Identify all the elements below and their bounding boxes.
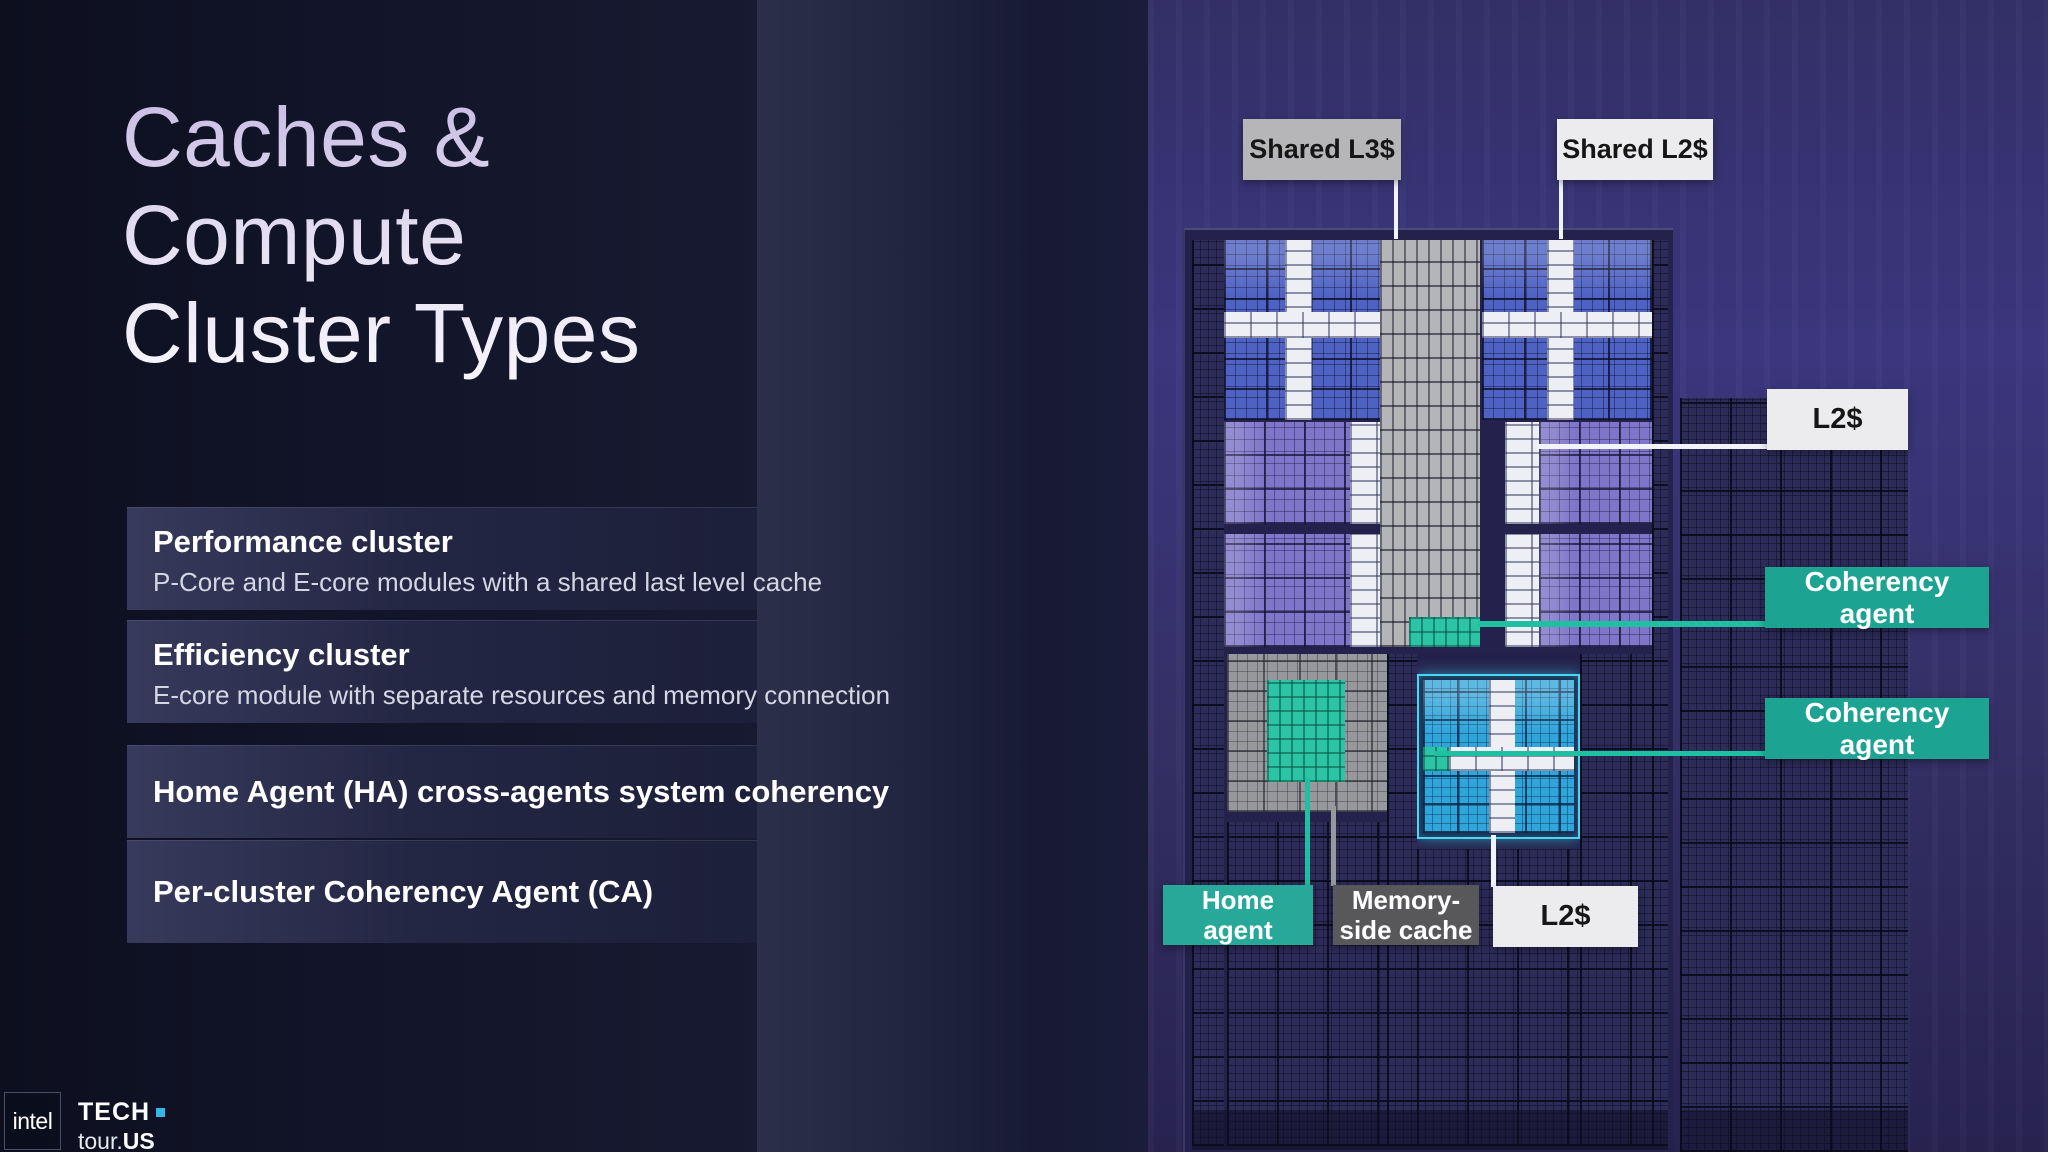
- connector-coherency-agent-1: [1478, 621, 1766, 627]
- connector-l2-top: [1538, 444, 1768, 449]
- die-bottom-seam: [1192, 1110, 1668, 1150]
- intel-logo: intel: [4, 1092, 61, 1150]
- label-l2-top: L2$: [1767, 389, 1908, 450]
- die-pcore-row2-left: [1224, 534, 1350, 647]
- tech-text: TECH: [78, 1098, 150, 1127]
- title-line-1: Caches &: [122, 88, 762, 186]
- die-efficiency-cluster-module: [1417, 674, 1580, 839]
- die-l2-bank-row2-left: [1350, 534, 1380, 647]
- die-fabric-left-column: [1192, 240, 1224, 1146]
- label-shared-l3: Shared L3$: [1243, 119, 1401, 180]
- tech-tour-line2: tour.US: [78, 1128, 165, 1152]
- die-l2-bank-row2-right: [1505, 534, 1539, 647]
- label-text-line2: side cache: [1340, 915, 1473, 945]
- connector-l2-bottom: [1491, 835, 1496, 887]
- label-text-line2: agent: [1203, 915, 1272, 945]
- die-coherency-agent-block-top: [1409, 617, 1480, 647]
- connector-coherency-agent-2: [1434, 751, 1766, 756]
- tech-tour-logo: TECH tour.US: [78, 1098, 165, 1152]
- die-uncore-block-right: [1680, 398, 1908, 1152]
- label-l2-bottom: L2$: [1493, 886, 1638, 947]
- connector-home-agent: [1305, 778, 1310, 886]
- label-text: Coherency agent: [1765, 697, 1989, 761]
- tour-text: tour.: [78, 1128, 123, 1152]
- die-l2-strip-horizontal-left: [1224, 312, 1392, 338]
- card-performance-cluster: Performance cluster P-Core and E-core mo…: [127, 507, 757, 610]
- label-text-line1: Home: [1202, 885, 1274, 915]
- label-text: L2$: [1541, 900, 1591, 933]
- die-l2-bank-row1-left: [1350, 422, 1380, 524]
- label-text: Shared L2$: [1562, 134, 1708, 165]
- tour-suffix-text: US: [123, 1128, 155, 1152]
- card-title: Per-cluster Coherency Agent (CA): [127, 874, 653, 910]
- slide-root: Caches & Compute Cluster Types Performan…: [0, 0, 2048, 1152]
- connector-shared-l2: [1559, 179, 1563, 239]
- connector-shared-l3: [1394, 179, 1398, 239]
- label-text: L2$: [1813, 403, 1863, 436]
- die-pcore-row1-right: [1539, 422, 1652, 524]
- label-text: Coherency agent: [1765, 566, 1989, 630]
- die-l2-bank-row1-right: [1505, 422, 1539, 524]
- label-text-line1: Memory-: [1352, 885, 1460, 915]
- connector-memory-side-cache: [1331, 806, 1336, 886]
- intel-logo-text: intel: [13, 1108, 53, 1135]
- card-efficiency-cluster: Efficiency cluster E-core module with se…: [127, 620, 757, 723]
- label-text: Shared L3$: [1249, 134, 1395, 165]
- die-home-agent-block: [1267, 680, 1345, 782]
- die-l2-strip-horizontal-right: [1482, 312, 1652, 338]
- die-shot: [1183, 228, 1673, 1152]
- label-memory-side-cache: Memory- side cache: [1333, 885, 1479, 945]
- card-subtitle: E-core module with separate resources an…: [127, 673, 757, 711]
- die-pcore-row2-right: [1539, 534, 1652, 647]
- tech-tour-line1: TECH: [78, 1098, 165, 1127]
- label-coherency-agent-2: Coherency agent: [1765, 698, 1989, 759]
- die-fabric-right-edge: [1652, 240, 1668, 1146]
- page-title: Caches & Compute Cluster Types: [122, 88, 762, 382]
- cyan-square-icon: [156, 1108, 165, 1117]
- card-title: Efficiency cluster: [127, 621, 757, 673]
- die-shared-l3-column: [1380, 240, 1480, 647]
- title-line-2: Compute: [122, 186, 762, 284]
- card-title: Home Agent (HA) cross-agents system cohe…: [127, 774, 889, 810]
- label-home-agent: Home agent: [1163, 885, 1313, 945]
- card-home-agent: Home Agent (HA) cross-agents system cohe…: [127, 745, 757, 838]
- die-pcore-row1-left: [1224, 422, 1350, 524]
- label-shared-l2: Shared L2$: [1557, 119, 1713, 180]
- title-line-3: Cluster Types: [122, 284, 762, 382]
- card-subtitle: P-Core and E-core modules with a shared …: [127, 560, 757, 598]
- card-title: Performance cluster: [127, 508, 757, 560]
- label-coherency-agent-1: Coherency agent: [1765, 567, 1989, 628]
- card-coherency-agent: Per-cluster Coherency Agent (CA): [127, 840, 757, 943]
- die-uncore-bottom-seam: [1680, 1110, 1908, 1152]
